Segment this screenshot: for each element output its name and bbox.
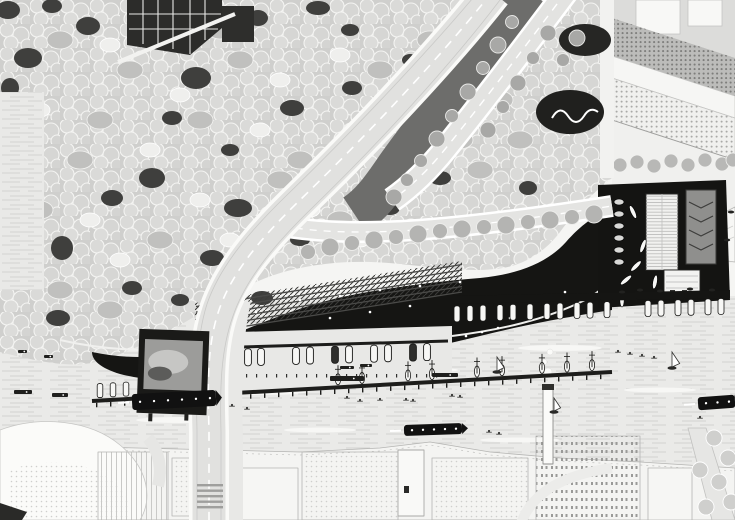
barge	[330, 376, 364, 381]
corner-tree	[706, 430, 722, 446]
service-lane	[232, 300, 241, 520]
tree-highlight-clump	[80, 213, 100, 227]
moored-boat	[658, 300, 664, 316]
pier-post	[334, 390, 335, 395]
edge-path	[600, 0, 614, 178]
moored-boat	[510, 304, 516, 320]
tree-shadow-clump	[280, 100, 304, 116]
illustration-stage	[0, 0, 735, 520]
roadside-tree	[460, 84, 476, 100]
dock-person-tick	[316, 374, 317, 378]
barge	[52, 393, 68, 397]
barge-cabin	[49, 356, 51, 358]
park-pond-ripples	[0, 92, 44, 290]
pier-post	[446, 383, 447, 388]
kayaker	[412, 399, 414, 401]
pier-post	[492, 303, 493, 307]
tree-shadow-clump	[181, 67, 211, 89]
boat-lift	[614, 211, 624, 217]
barge-cabin	[349, 367, 351, 369]
barge-cabin	[62, 394, 64, 396]
campus-roof	[688, 0, 722, 26]
dock-person-tick	[276, 374, 277, 378]
dock-person-tick	[296, 374, 297, 378]
pier-post	[672, 298, 673, 302]
roadside-tree	[429, 131, 445, 147]
kayaker	[359, 399, 361, 401]
quay-tree	[321, 238, 339, 256]
dock-person-tick	[256, 374, 257, 378]
corner-tree	[692, 462, 708, 478]
quay-tree	[497, 216, 515, 234]
crossing-stripe	[197, 484, 223, 486]
tree-shadow-clump	[51, 236, 73, 260]
person-dot	[329, 317, 332, 320]
pier-post	[530, 379, 531, 384]
boat-lift	[614, 223, 624, 229]
quay-tree	[453, 220, 471, 238]
barge	[14, 390, 32, 394]
moored-boat	[587, 302, 593, 318]
city-block	[432, 458, 528, 520]
person-dot	[379, 289, 382, 292]
person-dot	[481, 331, 484, 334]
roadside-tree	[497, 101, 510, 114]
person-dot	[419, 285, 422, 288]
pier-post	[552, 301, 553, 305]
ferry-wake	[118, 402, 129, 403]
roadside-tree	[477, 62, 490, 75]
barge	[360, 364, 372, 367]
barge-cabin	[26, 391, 28, 393]
quay-tree	[585, 205, 603, 223]
tree-shadow-clump	[221, 144, 239, 156]
kayaker	[246, 407, 248, 409]
moored-boat	[97, 384, 103, 398]
roadside-tree	[401, 174, 414, 187]
kayaker	[379, 398, 381, 400]
moored-boat	[332, 346, 339, 363]
tree-shadow-clump	[341, 24, 359, 36]
person-dot	[369, 311, 372, 314]
pier-post	[564, 301, 565, 305]
tree-clump	[67, 151, 93, 169]
small-boat	[687, 288, 693, 291]
tree-highlight-clump	[190, 193, 210, 207]
tree-clump	[227, 51, 253, 69]
quay-tree	[541, 211, 559, 229]
tree-highlight-clump	[110, 253, 130, 267]
tree-highlight-clump	[170, 88, 190, 102]
city-block	[302, 452, 398, 520]
tree-clump	[367, 61, 393, 79]
pier-post	[418, 385, 419, 390]
small-boat	[709, 289, 715, 292]
roadside-tree	[446, 110, 459, 123]
campus-tree	[647, 159, 661, 173]
pier-post	[600, 300, 601, 304]
person-dot	[409, 305, 412, 308]
person-dot	[459, 281, 462, 284]
dock-person-tick	[286, 374, 287, 378]
moored-boat	[371, 345, 378, 362]
roadside-tree	[510, 75, 526, 91]
barge	[44, 355, 53, 358]
dock-person-tick	[266, 374, 267, 378]
pier-post	[488, 381, 489, 386]
pier-post	[684, 298, 685, 302]
person-dot	[299, 299, 302, 302]
tree-highlight-clump	[250, 123, 270, 137]
campus-tree	[630, 155, 644, 169]
pier-post	[502, 380, 503, 385]
moored-boat	[110, 383, 116, 397]
dock-person-tick	[376, 374, 377, 378]
tree-highlight-clump	[270, 73, 290, 87]
tree-highlight-clump	[100, 38, 120, 52]
kayaker	[488, 430, 490, 432]
kayaker	[641, 354, 643, 356]
city-tower-block	[398, 450, 424, 516]
barge	[18, 350, 27, 353]
water-streak	[624, 388, 696, 393]
boat-lift	[614, 259, 624, 265]
moored-boat	[557, 303, 563, 319]
barge-cabin	[353, 378, 355, 380]
playground-ground	[536, 90, 604, 134]
city-block	[648, 468, 692, 520]
person-dot	[497, 327, 500, 330]
pier-post	[624, 299, 625, 303]
tree-clump	[507, 131, 533, 149]
pier-post	[96, 403, 97, 408]
roadside-tree	[386, 189, 402, 205]
person-dot	[564, 291, 567, 294]
barge	[432, 373, 458, 377]
small-boat	[657, 290, 663, 293]
kayaker	[346, 396, 348, 398]
kayaker	[451, 394, 453, 396]
tree-shadow-clump	[122, 281, 142, 295]
moored-boat	[497, 305, 503, 321]
smoke-puff	[547, 349, 553, 355]
pier-post	[600, 375, 601, 380]
tree-clump	[147, 231, 173, 249]
moored-boat	[705, 299, 711, 315]
kayaker	[629, 352, 631, 354]
moored-boat	[123, 382, 129, 396]
tree-shadow-clump	[224, 199, 252, 217]
corner-tree	[720, 450, 735, 466]
city-entrance-mark	[404, 486, 409, 493]
pier-post	[586, 375, 587, 380]
small-boat	[724, 239, 730, 242]
tree-shadow-clump	[76, 17, 100, 35]
pier-post	[376, 387, 377, 392]
tree-clump	[47, 31, 73, 49]
moored-boat	[718, 298, 724, 314]
quay-tree	[477, 220, 492, 235]
tree-clump	[187, 111, 213, 129]
barge-cabin	[449, 374, 451, 376]
tree-shadow-clump	[306, 1, 330, 15]
campus-tree	[681, 158, 695, 172]
pier-post	[696, 297, 697, 301]
crossing-stripe	[197, 501, 223, 503]
quay-tree	[433, 224, 448, 239]
crossing-stripe	[197, 490, 223, 492]
roadside-tree	[557, 54, 570, 67]
tree-shadow-clump	[101, 190, 123, 206]
tree-shadow-clump	[342, 81, 362, 95]
quay-tree	[345, 236, 360, 251]
chimney-cap	[542, 384, 554, 390]
moored-boat	[258, 348, 265, 365]
tree-clump	[97, 301, 123, 319]
dock-person-tick	[396, 374, 397, 378]
roadside-tree	[527, 52, 540, 65]
moored-boat	[574, 303, 580, 319]
dock-person-tick	[426, 374, 427, 378]
moored-boat	[293, 347, 300, 364]
pier-post	[250, 394, 251, 399]
dock-person-tick	[326, 374, 327, 378]
pier-post	[278, 393, 279, 398]
pier-post	[432, 384, 433, 389]
moored-boat	[385, 345, 392, 362]
roadside-tree	[569, 30, 585, 46]
moored-boat	[424, 344, 431, 361]
campus-tree	[613, 158, 627, 172]
tree-clump	[117, 61, 143, 79]
moored-boat	[544, 303, 550, 319]
pier-post	[460, 382, 461, 387]
moored-boat	[245, 349, 252, 366]
water-streak	[518, 345, 602, 351]
pier-post	[404, 386, 405, 391]
tree-highlight-clump	[330, 48, 350, 62]
small-boat	[637, 289, 643, 292]
pier-post	[516, 379, 517, 384]
tree-shadow-clump	[171, 294, 189, 306]
tree-shadow-clump	[46, 310, 70, 326]
roadside-tree	[415, 155, 428, 168]
pier-post	[264, 393, 265, 398]
pier-post	[572, 376, 573, 381]
roadside-tree	[506, 16, 519, 29]
tree-shadow-clump	[162, 111, 182, 125]
crossing-stripe	[197, 495, 223, 497]
moored-boat	[454, 306, 460, 322]
kayaker	[653, 356, 655, 358]
quay-tree	[521, 215, 536, 230]
billboard-leg	[184, 412, 188, 420]
tree-shadow-clump	[14, 48, 42, 68]
moored-boat	[346, 346, 353, 363]
barge-cabin	[368, 365, 370, 367]
pier-post	[612, 300, 613, 304]
quay-tree	[565, 210, 580, 225]
roadside-tree	[540, 25, 556, 41]
ferry-wake	[684, 404, 695, 405]
kayaker	[617, 350, 619, 352]
pier-post	[504, 303, 505, 307]
kayaker	[699, 416, 701, 418]
barge	[340, 366, 354, 369]
pier-post	[558, 377, 559, 382]
roadside-tree	[480, 122, 496, 138]
corner-tree	[723, 494, 735, 510]
kayaker	[231, 404, 233, 406]
quay-tree	[365, 231, 383, 249]
pier-post	[636, 299, 637, 303]
pier-post	[320, 390, 321, 395]
aerial-map-illustration	[0, 0, 735, 520]
person-dot	[255, 311, 258, 314]
dock-person-tick	[246, 374, 247, 378]
dock-person-tick	[306, 374, 307, 378]
tree-clump	[467, 161, 493, 179]
pavilion-annex	[222, 6, 254, 42]
moored-boat	[604, 302, 610, 318]
crossing-stripe	[197, 506, 223, 508]
corner-tree	[698, 499, 714, 515]
gabled-hall	[686, 190, 716, 264]
campus-tree	[664, 154, 678, 168]
moored-boat	[688, 299, 694, 315]
moored-boat	[675, 300, 681, 316]
boat-lift	[614, 199, 624, 205]
kayaker	[498, 432, 500, 434]
boat-lift	[614, 247, 624, 253]
pier-post	[362, 388, 363, 393]
tree-highlight-clump	[140, 143, 160, 157]
roadside-tree	[490, 37, 506, 53]
dock-person-tick	[366, 374, 367, 378]
tree-shadow-clump	[519, 181, 537, 195]
barge-cabin	[23, 351, 25, 353]
dock-person-tick	[416, 374, 417, 378]
tree-shadow-clump	[139, 168, 165, 188]
quay-tree	[409, 225, 427, 243]
pier-post	[306, 391, 307, 396]
kayaker	[405, 398, 407, 400]
moored-boat	[410, 344, 417, 361]
small-boat	[619, 291, 625, 294]
pier-post	[390, 386, 391, 391]
city-block	[240, 468, 298, 520]
kayaker	[459, 395, 461, 397]
pier-post	[292, 392, 293, 397]
pier-post	[348, 389, 349, 394]
chimney-shaft	[543, 388, 553, 464]
water-streak	[284, 428, 356, 433]
person-dot	[465, 335, 468, 338]
pier-post	[544, 378, 545, 383]
boat-lift	[614, 235, 624, 241]
moored-boat	[527, 304, 533, 320]
tree-clump	[87, 111, 113, 129]
tree-clump	[47, 281, 73, 299]
moored-boat	[480, 305, 486, 321]
campus-tree	[698, 153, 712, 167]
pier-post	[540, 302, 541, 306]
pier-post	[474, 382, 475, 387]
quay-tree	[301, 245, 316, 260]
moored-boat	[307, 347, 314, 364]
pier-post	[110, 402, 111, 407]
billboard-leg	[148, 413, 152, 421]
small-boat	[728, 211, 734, 214]
moored-boat	[645, 301, 651, 317]
person-dot	[339, 295, 342, 298]
dock-person-tick	[386, 374, 387, 378]
moored-boat	[467, 305, 473, 321]
quay-tree	[389, 230, 404, 245]
corner-tree	[711, 474, 727, 490]
